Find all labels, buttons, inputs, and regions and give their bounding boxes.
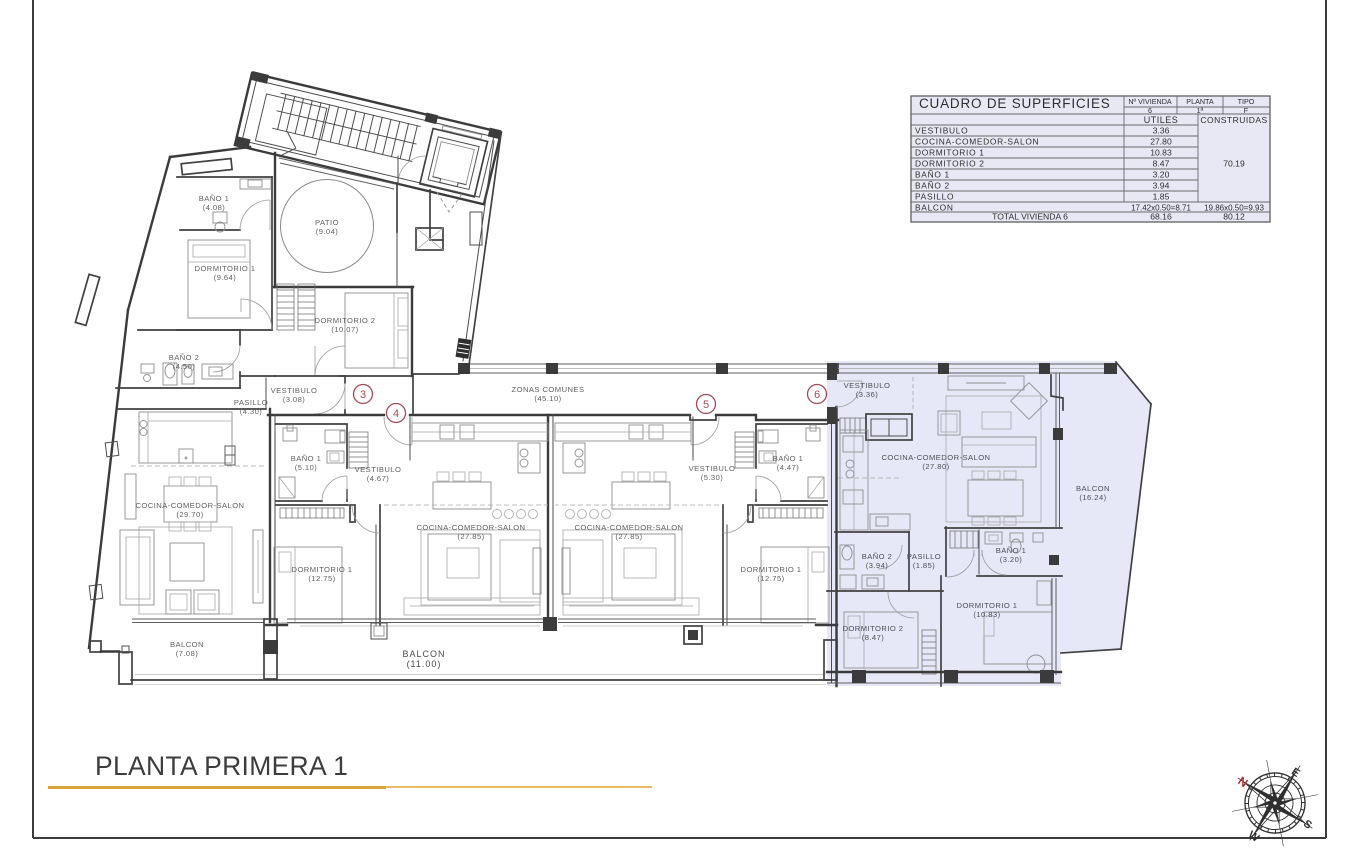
svg-text:(1.85): (1.85) [913,561,936,570]
svg-text:6: 6 [814,389,820,401]
svg-text:BAÑO 2: BAÑO 2 [915,181,950,191]
svg-text:DORMITORIO 2: DORMITORIO 2 [915,159,985,169]
svg-text:(27.80): (27.80) [922,462,949,471]
svg-text:BALCON: BALCON [1076,484,1110,493]
svg-text:(29.70): (29.70) [176,510,203,519]
svg-text:68.16: 68.16 [1150,212,1172,222]
svg-text:3: 3 [360,389,366,401]
svg-text:(3.94): (3.94) [866,561,889,570]
svg-text:TIPO: TIPO [1238,97,1255,106]
svg-text:BAÑO 2: BAÑO 2 [169,353,200,362]
svg-text:DORMITORIO 1: DORMITORIO 1 [741,565,802,574]
svg-text:DORMITORIO 2: DORMITORIO 2 [315,316,376,325]
svg-text:DORMITORIO 1: DORMITORIO 1 [292,565,353,574]
svg-text:3.36: 3.36 [1153,126,1170,136]
svg-text:BAÑO 1: BAÑO 1 [996,546,1027,555]
svg-text:(9.64): (9.64) [214,273,237,282]
svg-text:(4.30): (4.30) [240,407,263,416]
svg-text:4: 4 [393,408,399,420]
svg-text:(9.04): (9.04) [316,227,339,236]
svg-text:VESTIBULO: VESTIBULO [271,386,318,395]
svg-text:(4.50): (4.50) [173,362,196,371]
svg-text:(4.08): (4.08) [203,203,226,212]
svg-text:3.20: 3.20 [1153,170,1170,180]
svg-text:(27.85): (27.85) [457,532,484,541]
svg-text:BAÑO 1: BAÑO 1 [291,454,322,463]
svg-text:(27.85): (27.85) [615,532,642,541]
svg-text:UTILES: UTILES [1144,115,1179,125]
svg-text:CONSTRUIDAS: CONSTRUIDAS [1200,115,1267,125]
svg-text:BAÑO 1: BAÑO 1 [199,194,230,203]
svg-text:(4.47): (4.47) [777,463,800,472]
svg-text:6: 6 [1148,106,1152,115]
svg-text:DORMITORIO 1: DORMITORIO 1 [195,264,256,273]
svg-text:VESTIBULO: VESTIBULO [355,465,402,474]
svg-text:(8.47): (8.47) [862,633,885,642]
svg-text:1ª: 1ª [1197,106,1204,115]
svg-text:BAÑO 1: BAÑO 1 [915,170,950,180]
svg-text:F: F [1244,106,1249,115]
svg-text:(11.00): (11.00) [407,659,442,669]
svg-text:(12.75): (12.75) [757,574,784,583]
svg-text:DORMITORIO 1: DORMITORIO 1 [957,601,1018,610]
svg-text:80.12: 80.12 [1223,212,1245,222]
svg-text:TOTAL VIVIENDA 6: TOTAL VIVIENDA 6 [992,212,1068,222]
svg-text:VESTIBULO: VESTIBULO [915,126,968,136]
svg-text:PLANTA PRIMERA 1: PLANTA PRIMERA 1 [95,751,348,781]
svg-text:COCINA-COMEDOR-SALON: COCINA-COMEDOR-SALON [136,501,245,510]
svg-text:10.83: 10.83 [1150,148,1172,158]
svg-text:COCINA-COMEDOR-SALON: COCINA-COMEDOR-SALON [915,137,1039,147]
svg-text:PASILLO: PASILLO [234,398,268,407]
svg-text:COCINA-COMEDOR-SALON: COCINA-COMEDOR-SALON [575,523,684,532]
svg-text:(12.75): (12.75) [308,574,335,583]
svg-text:3.94: 3.94 [1153,181,1170,191]
svg-text:DORMITORIO 1: DORMITORIO 1 [915,148,985,158]
svg-text:BALCON: BALCON [915,203,954,213]
svg-text:8.47: 8.47 [1153,159,1170,169]
svg-text:BAÑO 2: BAÑO 2 [862,552,893,561]
svg-text:(3.20): (3.20) [1000,555,1023,564]
svg-text:(7.08): (7.08) [176,649,199,658]
svg-text:PLANTA: PLANTA [1186,97,1214,106]
svg-text:VESTIBULO: VESTIBULO [844,381,891,390]
svg-text:VESTIBULO: VESTIBULO [689,464,736,473]
svg-text:BALCON: BALCON [170,640,204,649]
svg-text:1.85: 1.85 [1153,192,1170,202]
svg-text:5: 5 [703,399,709,411]
svg-text:COCINA-COMEDOR-SALON: COCINA-COMEDOR-SALON [417,523,526,532]
svg-text:PASILLO: PASILLO [907,552,941,561]
svg-text:BALCON: BALCON [402,649,445,659]
svg-text:CUADRO DE SUPERFICIES: CUADRO DE SUPERFICIES [919,96,1111,111]
svg-text:(3.08): (3.08) [283,395,306,404]
svg-text:COCINA-COMEDOR-SALON: COCINA-COMEDOR-SALON [882,453,991,462]
svg-text:(4.67): (4.67) [367,474,390,483]
svg-text:(5.30): (5.30) [701,473,724,482]
svg-text:(10.83): (10.83) [973,610,1000,619]
svg-text:ZONAS COMUNES: ZONAS COMUNES [512,385,585,394]
svg-text:27.80: 27.80 [1150,137,1172,147]
svg-text:(16.24): (16.24) [1079,493,1106,502]
svg-text:70.19: 70.19 [1223,159,1245,169]
svg-text:(5.10): (5.10) [295,463,318,472]
svg-text:(3.36): (3.36) [856,390,879,399]
svg-text:(10.07): (10.07) [331,325,358,334]
svg-text:BAÑO 1: BAÑO 1 [773,454,804,463]
svg-text:(45.10): (45.10) [534,394,561,403]
svg-text:PATIO: PATIO [315,218,339,227]
svg-text:PASILLO: PASILLO [915,192,954,202]
svg-text:Nº VIVIENDA: Nº VIVIENDA [1128,97,1172,106]
svg-text:DORMITORIO 2: DORMITORIO 2 [843,624,904,633]
